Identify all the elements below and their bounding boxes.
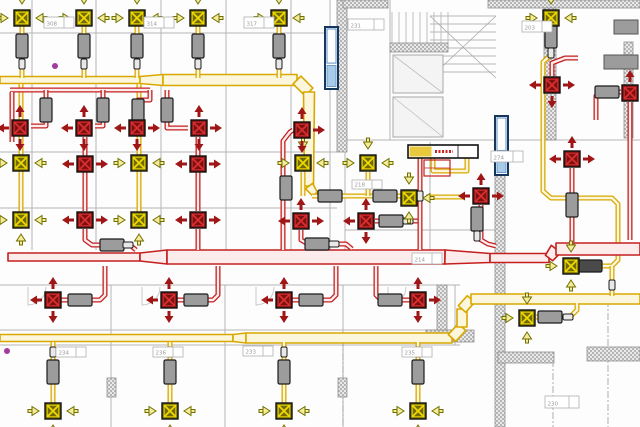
supply-airflow-arrow	[209, 216, 221, 225]
duct-damper	[578, 260, 602, 272]
room-number-label: 314	[144, 17, 174, 28]
exhaust-diffuser	[28, 403, 78, 427]
duct-damper	[97, 98, 109, 122]
duct-damper	[305, 238, 329, 250]
duct-damper	[329, 241, 339, 247]
supply-airflow-arrow	[165, 311, 174, 323]
supply-diffuser	[549, 136, 595, 167]
exhaust-diffuser	[343, 138, 393, 171]
room-number-label: 236	[153, 347, 183, 357]
duct-damper	[81, 59, 87, 69]
exhaust-airflow-arrow	[317, 159, 328, 168]
duct-damper	[47, 360, 59, 384]
exhaust-airflow-arrow	[212, 14, 223, 23]
supply-airflow-arrow	[280, 311, 289, 323]
supply-airflow-arrow	[477, 173, 486, 185]
duct-damper	[164, 360, 176, 384]
duct-damper	[276, 59, 282, 69]
room-number-label: 231	[348, 19, 384, 30]
svg-text:203: 203	[525, 26, 536, 32]
exhaust-diffuser	[259, 403, 309, 427]
duct-damper	[134, 59, 140, 69]
duct-damper	[538, 311, 562, 323]
svg-text:234: 234	[59, 351, 70, 357]
supply-diffuser	[114, 120, 160, 151]
duct-damper	[16, 34, 28, 58]
supply-airflow-arrow	[568, 136, 577, 148]
exhaust-airflow-arrow	[153, 216, 164, 225]
supply-airflow-arrow	[175, 216, 187, 225]
supply-airflow-arrow	[362, 232, 371, 244]
exhaust-airflow-arrow	[133, 0, 142, 4]
exhaust-airflow-arrow	[17, 234, 26, 245]
exhaust-airflow-arrow	[382, 159, 393, 168]
duct-damper	[19, 59, 25, 69]
room-number-label: 203	[522, 21, 552, 32]
svg-text:236: 236	[156, 351, 167, 357]
room-number-label: 308	[44, 17, 74, 28]
duct-damper	[184, 294, 208, 306]
exhaust-airflow-arrow	[565, 14, 576, 23]
supply-airflow-arrow	[0, 124, 9, 133]
supply-diffuser	[146, 277, 177, 323]
exhaust-airflow-arrow	[35, 159, 46, 168]
duct-damper	[474, 231, 480, 241]
supply-airflow-arrow	[49, 311, 58, 323]
exhaust-diffuser	[0, 155, 46, 171]
supply-airflow-arrow	[362, 198, 371, 210]
duct-damper	[595, 86, 619, 98]
exhaust-airflow-arrow	[67, 407, 78, 416]
exhaust-airflow-arrow	[393, 407, 404, 416]
room-number-label: 218	[352, 180, 382, 189]
exhaust-airflow-arrow	[293, 14, 304, 23]
magenta-marker-dot	[4, 348, 10, 354]
supply-airflow-arrow	[146, 296, 158, 305]
supply-airflow-arrow	[549, 155, 561, 164]
exhaust-diffuser	[145, 403, 195, 427]
floor-plan-canvas: 308314317231203274214218234236233235230	[0, 0, 640, 427]
room-number-label: 235	[402, 347, 432, 357]
exhaust-airflow-arrow	[98, 14, 109, 23]
supply-airflow-arrow	[529, 81, 541, 90]
room-number-label: 274	[491, 151, 523, 162]
supply-airflow-arrow	[165, 277, 174, 289]
supply-airflow-arrow	[62, 160, 74, 169]
duct-damper	[299, 294, 323, 306]
supply-diffuser	[175, 212, 221, 228]
duct-damper	[563, 314, 573, 320]
duct-damper	[100, 239, 124, 251]
duct-damper	[161, 98, 173, 122]
duct-damper	[50, 347, 56, 357]
exhaust-diffuser	[393, 403, 443, 427]
supply-airflow-arrow	[148, 124, 160, 133]
supply-diffuser	[175, 156, 221, 172]
supply-airflow-arrow	[280, 277, 289, 289]
svg-text:218: 218	[355, 183, 366, 189]
exhaust-airflow-arrow	[184, 407, 195, 416]
blue-access-panel	[325, 27, 338, 89]
duct-damper	[281, 347, 287, 357]
exhaust-diffuser	[114, 155, 164, 171]
svg-text:274: 274	[494, 156, 505, 162]
duct-damper	[471, 207, 483, 231]
supply-diffuser	[30, 277, 61, 323]
supply-diffuser	[410, 277, 441, 323]
exhaust-airflow-arrow	[35, 216, 46, 225]
duct-damper	[78, 34, 90, 58]
exhaust-airflow-arrow	[298, 407, 309, 416]
supply-diffuser	[529, 77, 575, 108]
svg-text:233: 233	[246, 350, 257, 356]
exhaust-airflow-arrow	[259, 407, 270, 416]
room-number-label: 234	[56, 347, 86, 357]
supply-airflow-arrow	[62, 216, 74, 225]
svg-text:231: 231	[351, 24, 362, 30]
supply-diffuser	[261, 277, 292, 323]
exhaust-diffuser	[0, 212, 46, 245]
svg-text:230: 230	[548, 402, 559, 408]
svg-text:308: 308	[47, 22, 58, 28]
duct-damper	[273, 34, 285, 58]
exhaust-airflow-arrow	[114, 216, 125, 225]
room-number-label: 317	[244, 17, 274, 28]
exhaust-airflow-arrow	[135, 234, 144, 245]
supply-airflow-arrow	[195, 105, 204, 117]
supply-diffuser	[62, 212, 108, 228]
duct-damper	[566, 193, 578, 217]
blue-access-panel	[495, 116, 508, 175]
duct-damper	[417, 191, 423, 201]
exhaust-airflow-arrow	[0, 14, 8, 23]
duct-damper	[548, 48, 554, 58]
duct-damper	[192, 34, 204, 58]
hvac-floor-plan: 308314317231203274214218234236233235230	[0, 0, 640, 427]
exhaust-airflow-arrow	[28, 407, 39, 416]
supply-airflow-arrow	[414, 311, 423, 323]
duct-damper	[412, 360, 424, 384]
duct-damper	[131, 34, 143, 58]
supply-airflow-arrow	[61, 124, 73, 133]
exhaust-airflow-arrow	[114, 159, 125, 168]
exhaust-airflow-arrow	[0, 159, 7, 168]
duct-damper	[318, 190, 342, 202]
exhaust-airflow-arrow	[0, 216, 7, 225]
svg-text:214: 214	[415, 258, 426, 264]
supply-airflow-arrow	[30, 296, 42, 305]
duct-damper	[40, 98, 52, 122]
supply-airflow-arrow	[49, 277, 58, 289]
supply-airflow-arrow	[80, 105, 89, 117]
exhaust-airflow-arrow	[145, 407, 156, 416]
exhaust-airflow-arrow	[523, 332, 532, 343]
duct-damper	[379, 215, 403, 227]
exhaust-airflow-arrow	[278, 159, 289, 168]
supply-diffuser	[191, 105, 222, 151]
duct-damper	[68, 294, 92, 306]
supply-airflow-arrow	[563, 81, 575, 90]
svg-text:314: 314	[147, 22, 158, 28]
supply-airflow-arrow	[209, 160, 221, 169]
exhaust-airflow-arrow	[194, 0, 203, 4]
duct-damper	[278, 360, 290, 384]
supply-airflow-arrow	[583, 155, 595, 164]
room-number-label: 233	[243, 346, 273, 356]
exhaust-airflow-arrow	[567, 280, 576, 291]
exhaust-airflow-arrow	[173, 14, 184, 23]
exhaust-airflow-arrow	[405, 173, 414, 184]
duct-damper	[373, 190, 397, 202]
duct-damper	[609, 280, 615, 290]
supply-airflow-arrow	[312, 217, 324, 226]
magenta-marker-dot	[52, 63, 58, 69]
supply-airflow-arrow	[114, 124, 126, 133]
stairs	[392, 12, 496, 137]
room-number-label: 230	[545, 396, 579, 408]
svg-text:235: 235	[405, 351, 416, 357]
supply-airflow-arrow	[175, 160, 187, 169]
room-number-label: 214	[412, 253, 442, 264]
supply-airflow-arrow	[96, 160, 108, 169]
supply-diffuser	[343, 198, 374, 244]
duct-damper	[195, 59, 201, 69]
duct-damper	[123, 242, 133, 248]
exhaust-diffuser	[0, 0, 47, 26]
supply-airflow-arrow	[278, 217, 290, 226]
supply-diffuser	[62, 156, 108, 172]
exhaust-diffuser	[173, 0, 223, 26]
exhaust-airflow-arrow	[18, 0, 27, 4]
exhaust-airflow-arrow	[275, 0, 284, 4]
exhaust-airflow-arrow	[432, 407, 443, 416]
supply-airflow-arrow	[210, 124, 222, 133]
supply-airflow-arrow	[414, 277, 423, 289]
exhaust-airflow-arrow	[80, 0, 89, 4]
supply-diffuser	[61, 105, 92, 151]
duct-damper	[378, 294, 402, 306]
duct-damper	[280, 176, 292, 200]
supply-airflow-arrow	[96, 216, 108, 225]
exhaust-airflow-arrow	[153, 159, 164, 168]
exhaust-airflow-arrow	[112, 14, 123, 23]
svg-text:317: 317	[247, 22, 258, 28]
